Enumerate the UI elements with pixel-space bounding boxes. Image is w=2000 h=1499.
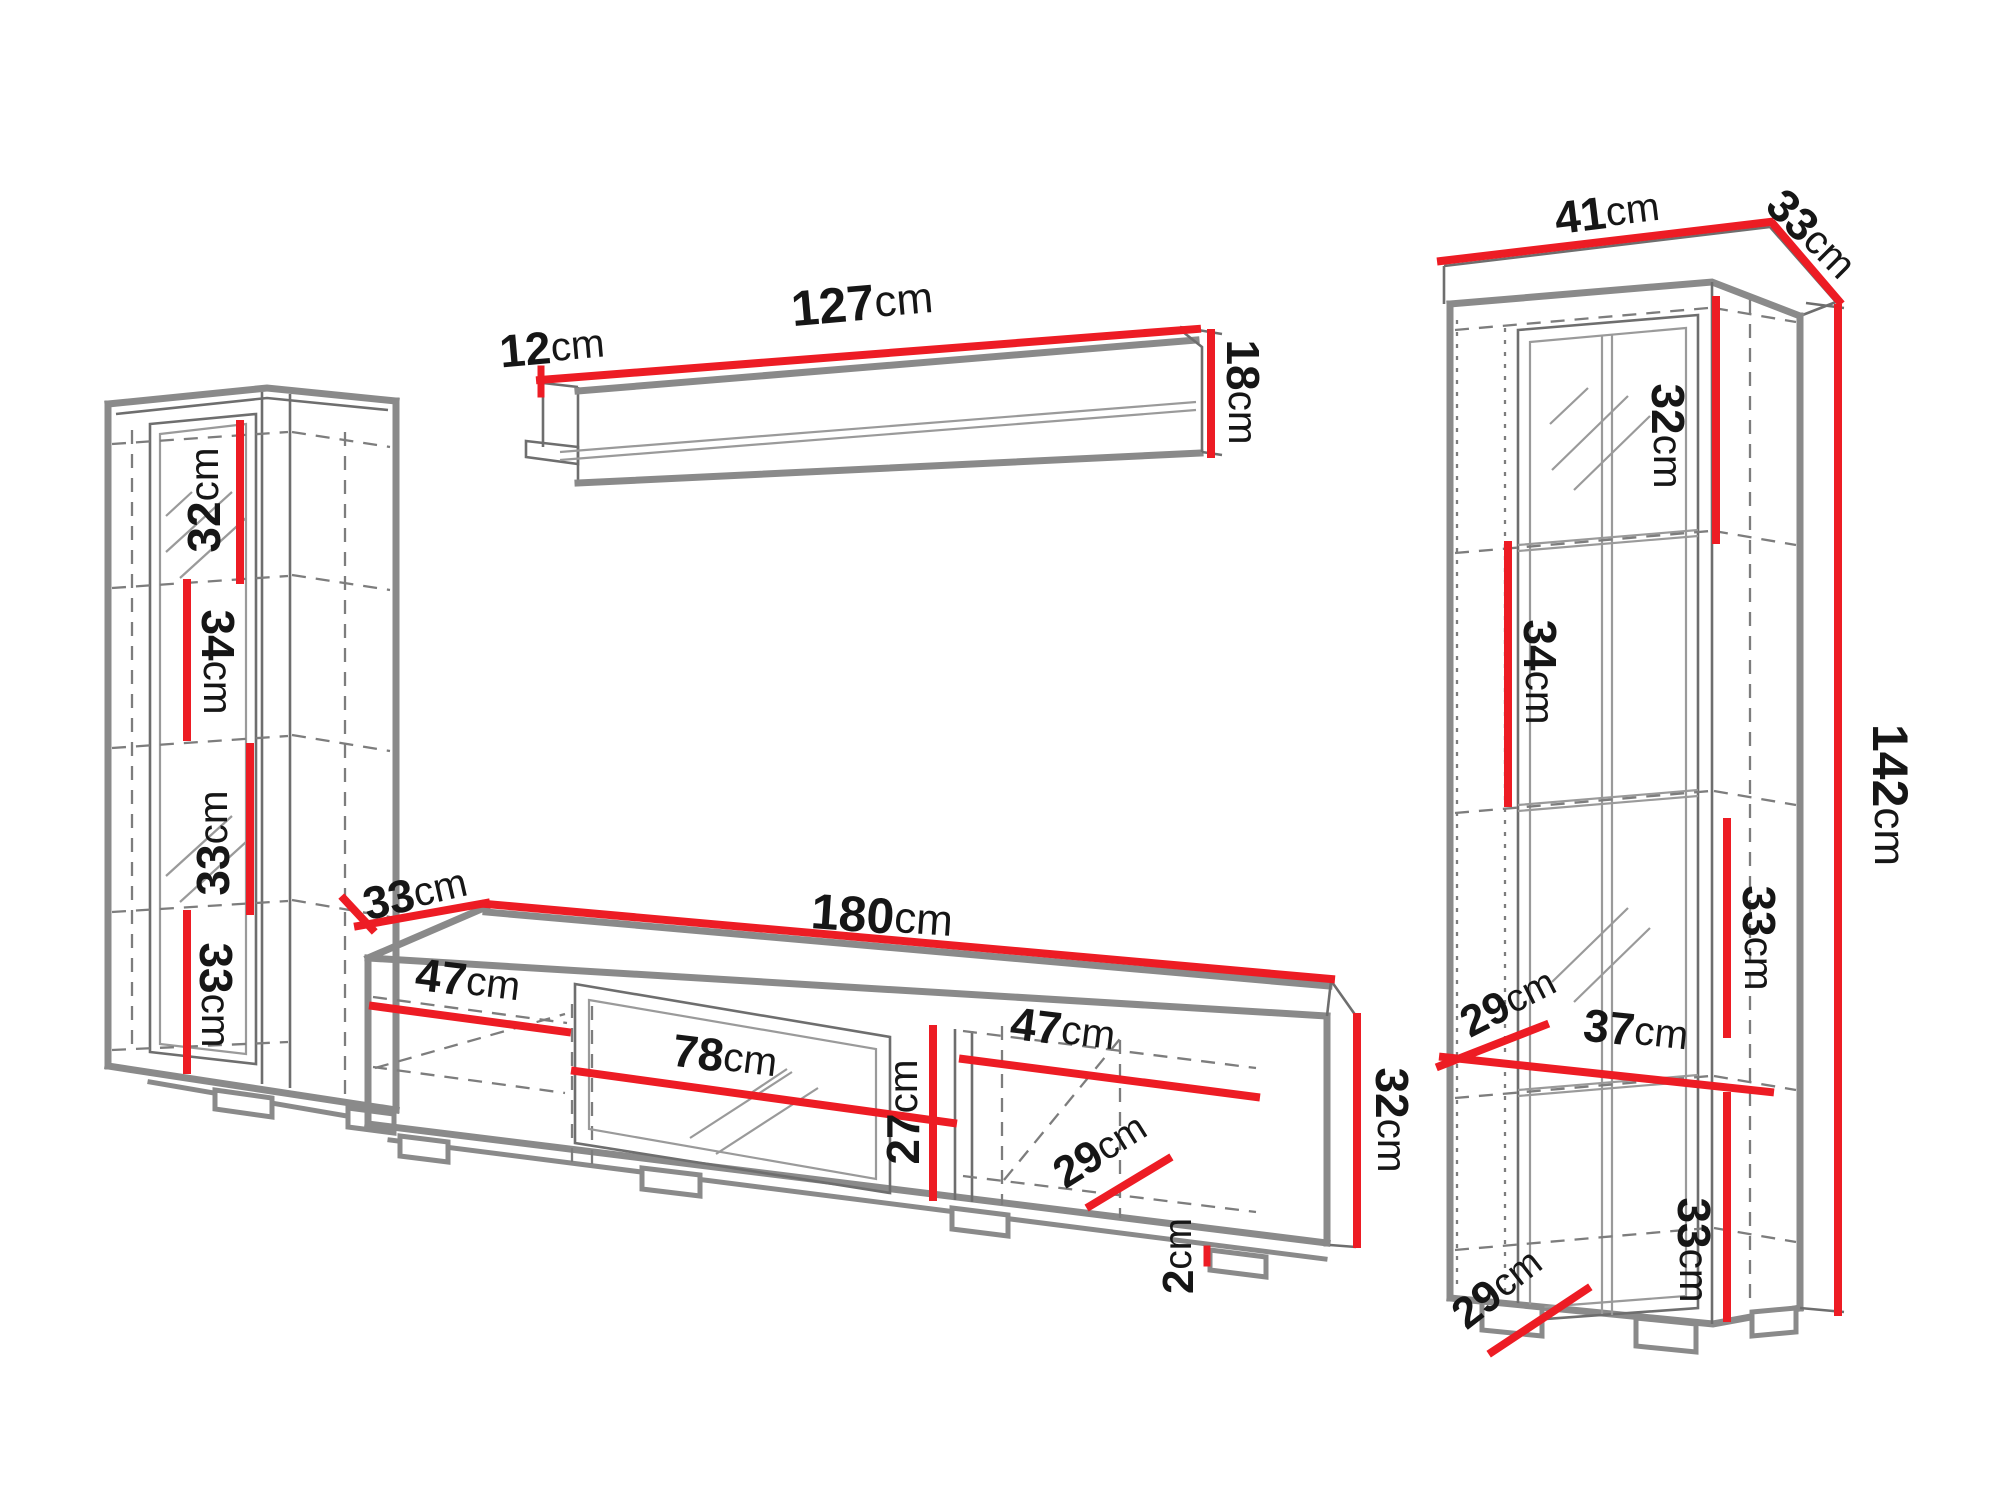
display-cabinet-top-edge: [1450, 282, 1800, 316]
cabinet-foot: [952, 1208, 1008, 1236]
dimension-label-tv-47l: 47cm: [413, 948, 524, 1012]
dimension-label-tv-180: 180cm: [809, 883, 955, 949]
shelf-lip: [526, 441, 578, 464]
dimension-label-tv-27: 27cm: [877, 1059, 929, 1164]
furniture-dimension-diagram: 32cm34cm33cm33cm 12cm127cm18cm: [0, 0, 2000, 1499]
dimension-label-dc-29a: 29cm: [1452, 957, 1564, 1046]
shelf-dashed-line: [112, 575, 390, 590]
tv-stand-glass-door: [575, 984, 890, 1193]
dimension-label-tv-47r: 47cm: [1008, 997, 1119, 1061]
dimension-label-tv-2: 2cm: [1154, 1218, 1203, 1294]
left-cabinet-top-edge: [108, 388, 396, 404]
tv-stand: 33cm180cm47cm78cm27cm47cm29cm2cm32cm: [344, 856, 1418, 1294]
dimension-label-lc-32: 32cm: [178, 447, 230, 552]
dimension-label-lc-34: 34cm: [192, 609, 244, 714]
shelf-inner-board: [560, 402, 1196, 460]
dimension-label-ws-18: 18cm: [1217, 339, 1269, 444]
dimension-label-dc-33a: 33cm: [1733, 885, 1785, 990]
wall-shelf: 12cm127cm18cm: [497, 269, 1269, 483]
glass-hatch-icon: [1550, 388, 1650, 490]
shelf-top-edge: [578, 340, 1196, 391]
cabinet-foot: [215, 1090, 272, 1117]
cabinet-foot: [1636, 1318, 1696, 1352]
display-cabinet: 41cm33cm32cm34cm142cm33cm29cm37cm33cm29c…: [1440, 178, 1918, 1352]
dimension-label-dc-142: 142cm: [1862, 724, 1918, 866]
shelf-right-end: [1178, 328, 1202, 452]
dimension-label-tv-32: 32cm: [1366, 1067, 1418, 1172]
dimension-label-lc-33a: 33cm: [187, 790, 239, 895]
dimension-label-tv-78: 78cm: [670, 1024, 781, 1088]
shelf-bottom-edge: [578, 453, 1200, 483]
dimension-line-tv-47r: [963, 1059, 1256, 1097]
diagram-canvas: 32cm34cm33cm33cm 12cm127cm18cm: [0, 0, 2000, 1499]
cabinet-foot: [400, 1136, 448, 1162]
dimension-line-ws-127: [540, 329, 1197, 380]
left-column-cabinet: 32cm34cm33cm33cm: [108, 388, 396, 1133]
dimension-label-dc-37: 37cm: [1581, 999, 1691, 1062]
cabinet-foot: [1210, 1250, 1266, 1277]
dimension-label-ws-127: 127cm: [789, 269, 935, 337]
dimension-label-dc-32: 32cm: [1642, 383, 1694, 488]
dimension-label-dc-33b: 33cm: [1668, 1197, 1720, 1302]
cabinet-foot: [1752, 1308, 1796, 1336]
dimension-label-ws-12: 12cm: [497, 317, 606, 378]
dimension-label-tv-29: 29cm: [1044, 1103, 1155, 1198]
dimension-line-dc-37: [1443, 1057, 1770, 1092]
cabinet-foot: [642, 1168, 700, 1196]
tv-stand-dimension-labels: 33cm180cm47cm78cm27cm47cm29cm2cm32cm: [358, 856, 1418, 1294]
dimension-label-lc-33b: 33cm: [190, 942, 242, 1047]
dimension-label-dc-34: 34cm: [1514, 619, 1566, 724]
display-cabinet-dimension-labels: 41cm33cm32cm34cm142cm33cm29cm37cm33cm29c…: [1442, 178, 1918, 1338]
